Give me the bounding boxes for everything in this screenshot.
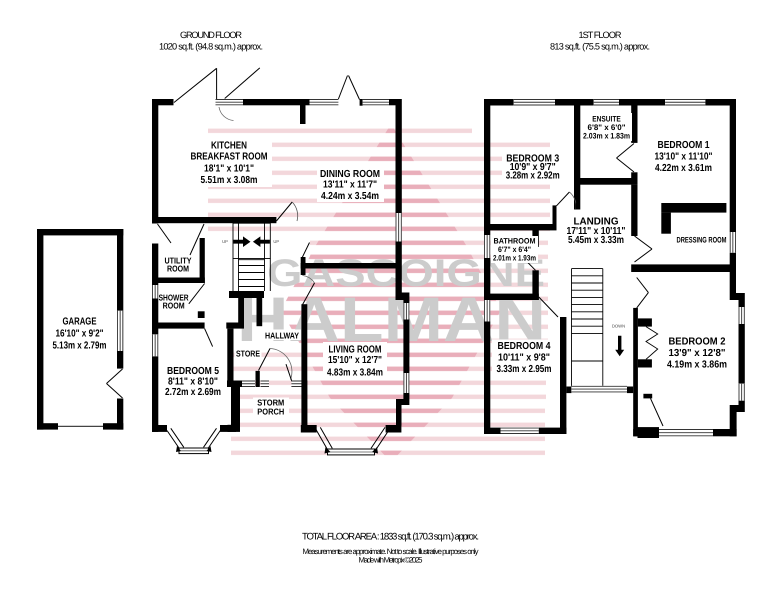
svg-text:BEDROOM 2: BEDROOM 2 <box>669 337 726 348</box>
svg-text:KITCHEN: KITCHEN <box>211 141 247 152</box>
svg-text:TOTAL FLOOR AREA : 1833 sq.ft.: TOTAL FLOOR AREA : 1833 sq.ft. (170.3 sq… <box>302 532 479 543</box>
svg-text:13'9" x 12'8": 13'9" x 12'8" <box>669 348 726 359</box>
svg-text:4.22m x 3.61m: 4.22m x 3.61m <box>655 163 712 174</box>
svg-text:DINING ROOM: DINING ROOM <box>320 169 380 180</box>
svg-text:LIVING ROOM: LIVING ROOM <box>329 345 382 356</box>
svg-text:4.83m x 3.84m: 4.83m x 3.84m <box>327 368 383 379</box>
svg-text:8'11" x 8'10": 8'11" x 8'10" <box>168 377 218 388</box>
svg-text:5.45m x 3.33m: 5.45m x 3.33m <box>568 235 624 246</box>
svg-text:3.28m x 2.92m: 3.28m x 2.92m <box>506 171 560 182</box>
svg-text:5.51m x 3.08m: 5.51m x 3.08m <box>201 175 258 186</box>
svg-text:DOWN: DOWN <box>612 324 625 329</box>
svg-text:UP: UP <box>273 239 279 244</box>
svg-text:2.03m x 1.83m: 2.03m x 1.83m <box>583 132 630 141</box>
svg-text:BEDROOM 1: BEDROOM 1 <box>658 140 710 151</box>
svg-text:5.13m x 2.79m: 5.13m x 2.79m <box>53 341 107 352</box>
svg-text:4.24m x 3.54m: 4.24m x 3.54m <box>321 191 379 202</box>
svg-text:13'10" x 11'10": 13'10" x 11'10" <box>655 152 713 163</box>
svg-text:BEDROOM 5: BEDROOM 5 <box>167 366 219 377</box>
svg-text:BEDROOM 4: BEDROOM 4 <box>498 341 551 352</box>
svg-text:UP: UP <box>222 239 228 244</box>
svg-text:STORE: STORE <box>236 349 260 359</box>
svg-text:13'11" x 11'7": 13'11" x 11'7" <box>323 180 377 191</box>
svg-text:GROUND FLOOR: GROUND FLOOR <box>180 30 242 40</box>
svg-text:1ST FLOOR: 1ST FLOOR <box>579 30 622 40</box>
svg-text:HALLWAY: HALLWAY <box>265 331 299 341</box>
svg-text:GARAGE: GARAGE <box>63 317 97 328</box>
svg-text:18'1" x 10'1": 18'1" x 10'1" <box>204 164 254 175</box>
svg-text:4.19m x 3.86m: 4.19m x 3.86m <box>667 360 727 371</box>
svg-text:Made with Metropix ©2025: Made with Metropix ©2025 <box>359 556 424 565</box>
svg-text:ROOM: ROOM <box>167 264 189 274</box>
svg-text:16'10" x 9'2": 16'10" x 9'2" <box>56 329 104 340</box>
svg-text:2.72m x 2.69m: 2.72m x 2.69m <box>165 387 221 398</box>
svg-text:10'11" x 9'8": 10'11" x 9'8" <box>498 353 550 364</box>
svg-text:PORCH: PORCH <box>257 407 284 417</box>
svg-text:1020 sq.ft. (94.8 sq.m.) appro: 1020 sq.ft. (94.8 sq.m.) approx. <box>159 42 263 52</box>
svg-text:ROOM: ROOM <box>163 300 185 310</box>
svg-text:3.33m x 2.95m: 3.33m x 2.95m <box>497 364 552 375</box>
svg-text:15'10" x 12'7": 15'10" x 12'7" <box>328 355 382 366</box>
svg-text:813 sq.ft. (75.5 sq.m.) approx: 813 sq.ft. (75.5 sq.m.) approx. <box>550 42 650 52</box>
svg-text:2.01m x 1.93m: 2.01m x 1.93m <box>493 254 536 263</box>
svg-text:DRESSING ROOM: DRESSING ROOM <box>677 236 727 245</box>
svg-text:BREAKFAST ROOM: BREAKFAST ROOM <box>191 152 268 163</box>
